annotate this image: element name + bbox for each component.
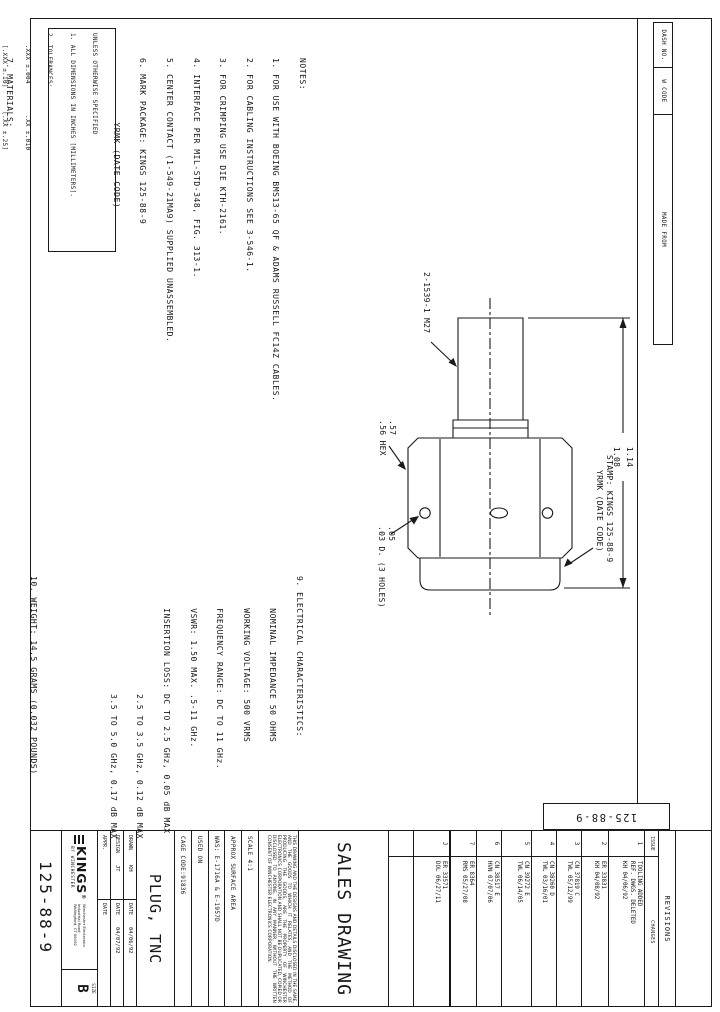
drawing-number-cell: 125-88-9 (30, 831, 61, 1007)
design-initials: JT (111, 863, 123, 899)
design-label: DESIGN (111, 831, 123, 863)
revision-issue: J (414, 831, 449, 857)
drawing-sheet: DASH NO. W CODE MADE FROM 125-88-9 (0, 0, 720, 1012)
size-label: SIZE (90, 983, 97, 994)
tolerance-line: [.XXX ±.10] [.XX ±.25] (0, 33, 8, 247)
drawn-row: DRAWN KH DATE 04/06/92 (123, 831, 136, 1007)
revisions-subheader: ISSUE CHANGES (644, 831, 658, 1007)
date-label: DATE (124, 899, 136, 925)
document-type-cell: SALES DRAWING (298, 831, 388, 1007)
kings-bars-icon (64, 835, 94, 844)
revision-row: 2 ER 33831 KH 04/08/92 (581, 831, 608, 1007)
drawn-initials: KH (124, 863, 136, 899)
revision-row: 7 ER 8364 RMS 05/27/08 (450, 831, 476, 1007)
revision-issue: 1 (609, 831, 644, 857)
appr-initials (98, 863, 110, 899)
address-line: Wallingford, CT 06492 (72, 904, 77, 947)
size-value: B (74, 984, 90, 992)
revisions-title: REVISIONS (658, 831, 675, 1007)
dim-value-max: 1.14 (625, 435, 634, 479)
arrow-hex (398, 461, 407, 470)
brand-name: KINGS® (74, 846, 88, 900)
revision-row: 1 TOOLING ADDED REF. DWGS. DELETED KH 04… (608, 831, 644, 1007)
revision-text: HVN 07/07/06 (484, 861, 491, 1007)
electrical-notes-block: 9. ELECTRICAL CHARACTERISTICS: NOMINAL I… (10, 576, 321, 839)
scanned-drawing-page: DASH NO. W CODE MADE FROM 125-88-9 (0, 0, 720, 1012)
revision-text: RMS 05/27/08 (459, 861, 466, 1007)
drawn-label: DRAWN (124, 831, 136, 863)
revision-text: ER 33571 (440, 861, 447, 1007)
revision-issue: 7 (451, 831, 476, 857)
revision-issue: 5 (502, 831, 531, 857)
title-block-strip: REVISIONS ISSUE CHANGES 1 TOOLING ADDED … (30, 830, 712, 1007)
revision-text: TWL 05/12/99 (564, 861, 571, 1007)
wire-hole-top (542, 508, 552, 518)
part-title: PLUG, TNC (147, 874, 165, 964)
date-label: DATE (111, 899, 123, 925)
revision-issue: 2 (582, 831, 608, 857)
elec-line: WORKING VOLTAGE: 500 VRMS (241, 576, 250, 839)
revision-text: ER 8364 (467, 861, 474, 1007)
arrow-stamp (564, 559, 573, 568)
revision-text: TOOLING ADDED (635, 861, 642, 1007)
part-title-cell: PLUG, TNC (136, 831, 174, 1007)
was-number-cell: WAS: E-1716A & E-1957D (208, 831, 224, 1007)
arrow-holes (410, 516, 420, 525)
revision-issue: 6 (477, 831, 501, 857)
appr-date (98, 925, 110, 1007)
elec-line: NOMINAL IMPEDANCE 50 OHMS (268, 576, 277, 839)
logo-row: KINGS® BY WINCHESTER Winchester Electron… (61, 831, 97, 1007)
revision-text: CN 39272 E (522, 861, 529, 1007)
revision-text: TWL 06/14/05 (514, 861, 521, 1007)
design-row: DESIGN JT DATE 04/07/92 (110, 831, 123, 1007)
revision-text: CN 37819 C (572, 861, 579, 1007)
surface-area-cell: APPROX SURFACE AREA (224, 831, 241, 1007)
tolerance-title: UNLESS OTHERWISE SPECIFIED (90, 33, 98, 247)
sleeve-callout: 2-1539-1 M27 (422, 272, 431, 333)
revision-text: KH 04/06/92 (620, 861, 627, 1007)
tolerance-line: 2. TOLERANCES: (45, 33, 53, 247)
elec-line: 2.5 TO 3.5 GHz, 0.12 dB MAX (135, 576, 144, 839)
appr-label: APPR. (98, 831, 110, 863)
revision-text: DOL 06/27/11 (432, 861, 439, 1007)
scale-cell: SCALE 4:1 (241, 831, 258, 1007)
revision-row: 4 CN 38260 D TWL 03/16/01 (531, 831, 556, 1007)
tolerance-line: 1. ALL DIMENSIONS IN INCHES [MILLIMETERS… (67, 33, 75, 247)
kings-logo: KINGS® BY WINCHESTER Winchester Electron… (62, 831, 97, 969)
stamp-note-line2: YRMK (DATE CODE) (595, 470, 604, 552)
elec-line: 3.5 TO 5.0 GHz, 0.17 dB MAX (108, 576, 117, 839)
revision-text: CN 38517 E (492, 861, 499, 1007)
revision-text: ER 33831 (599, 861, 606, 1007)
holes-dia-max: .05 (387, 526, 396, 541)
revision-row: J ER 33571 DOL 06/27/11 (413, 831, 450, 1007)
date-label: DATE (98, 899, 110, 925)
revisions-changes-header: CHANGES (645, 857, 658, 1007)
elec-line: FREQUENCY RANGE: DC TO 11 GHz. (215, 576, 224, 839)
design-date: 04/07/92 (111, 925, 123, 1007)
sheet-size-cell: SIZE B (62, 969, 97, 1007)
elec-line: INSERTION LOSS: DC TO 2.5 GHz, 0.05 dB M… (161, 576, 170, 839)
dim-arrow-left (620, 318, 627, 328)
revision-row-empty (388, 831, 413, 1007)
brand-byline: BY WINCHESTER (69, 846, 74, 900)
leader-stamp (569, 548, 593, 564)
revision-text: KH 04/08/92 (591, 861, 598, 1007)
tolerance-line: .XXX ±.004 .XX ±.010 (22, 33, 30, 247)
revision-text: REF. DWGS. DELETED (627, 861, 634, 1007)
tolerance-block: UNLESS OTHERWISE SPECIFIED 1. ALL DIMENS… (48, 28, 116, 252)
wire-hole-middle (491, 508, 508, 518)
elec-line: 9. ELECTRICAL CHARACTERISTICS: (294, 576, 303, 839)
dim-arrow-right (620, 578, 627, 588)
revisions-issue-header: ISSUE (645, 831, 658, 857)
revision-text: TWL 03/16/01 (539, 861, 546, 1007)
hex-size-max: .57 (388, 420, 397, 435)
leader-sleeve (431, 342, 453, 363)
approval-row: APPR. DATE (97, 831, 110, 1007)
proprietary-notice: THIS DRAWING AND THE DESIGNS AND DETAILS… (258, 831, 298, 1007)
drawn-date: 04/06/92 (124, 925, 136, 1007)
revision-row: 6 CN 38517 E HVN 07/07/06 (476, 831, 501, 1007)
drawing-number: 125-88-9 (36, 861, 55, 954)
wire-hole-bottom (420, 508, 430, 518)
stamp-note-line1: STAMP: KINGS 125-88-9 (605, 455, 614, 562)
revision-issue: 3 (557, 831, 581, 857)
revision-row: 3 CN 37819 C TWL 05/12/99 (556, 831, 581, 1007)
used-on-cell: USED ON (191, 831, 208, 1007)
holes-callout: .03 D. (3 HOLES) (377, 526, 386, 608)
elec-line (82, 576, 91, 839)
revisions-spacer-cell (675, 831, 712, 1007)
revision-issue: 4 (532, 831, 556, 857)
revision-text: CN 38260 D (547, 861, 554, 1007)
revision-issue (389, 831, 413, 857)
elec-line: 10. WEIGHT: 14.5 GRAMS (0.032 POUNDS) (28, 576, 37, 839)
elec-line (55, 576, 64, 839)
hex-size-min: .56 HEX (378, 420, 387, 456)
cage-code-cell: CAGE CODE:91836 (174, 831, 191, 1007)
elec-line: VSWR: 1.50 MAX. .5-11 GHz. (188, 576, 197, 839)
company-address: Winchester Electronics Industrial Road W… (64, 904, 94, 947)
document-type: SALES DRAWING (333, 842, 354, 996)
revision-row: 5 CN 39272 E TWL 06/14/05 (501, 831, 531, 1007)
